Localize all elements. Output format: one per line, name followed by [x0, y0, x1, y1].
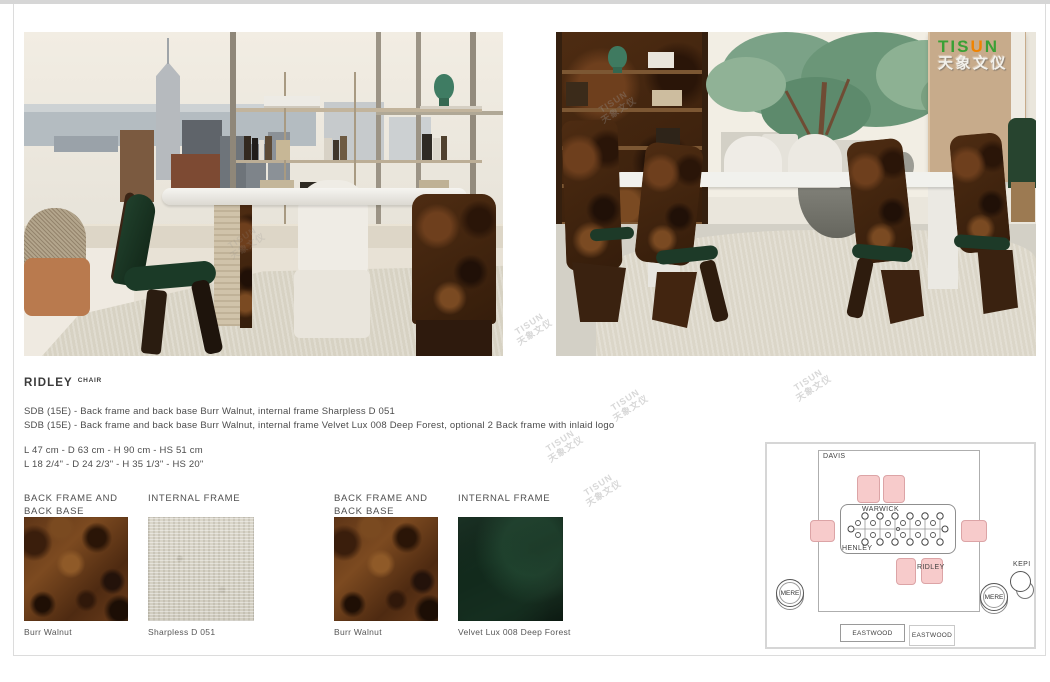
floorplan-panel: DAVIS WARWICK HENLEY: [765, 442, 1036, 649]
book: [276, 140, 290, 160]
burl-chair-base: [416, 320, 492, 356]
swatch-burr-walnut: [334, 517, 438, 621]
book: [566, 82, 588, 106]
burl-chair-base: [572, 262, 626, 322]
floorplan-label-eastwood: EASTWOOD: [852, 630, 892, 637]
description-line: SDB (15E) - Back frame and back base Bur…: [24, 419, 614, 433]
dimensions-metric: L 47 cm - D 63 cm - H 90 cm - HS 51 cm: [24, 444, 203, 458]
brand-logo-text: TISUN: [938, 38, 1030, 55]
mere-inner-ring: [983, 586, 1005, 608]
book: [265, 136, 272, 160]
product-photo-left: [24, 32, 503, 356]
floorplan-console-eastwood: EASTWOOD: [909, 625, 955, 646]
bust-neck: [439, 98, 449, 106]
book: [259, 140, 264, 160]
watermark: TISUN天象文仪: [789, 365, 833, 404]
floorplan-label-warwick: WARWICK: [862, 506, 899, 513]
book: [441, 136, 447, 160]
swatch-burr-walnut: [24, 517, 128, 621]
floorplan-chair: [961, 520, 987, 542]
swatch-caption: Burr Walnut: [24, 627, 72, 637]
book: [333, 140, 339, 160]
catalog-page: TISUN 天象文仪 RIDLEYCHAIR SDB (15E) - Back …: [0, 0, 1050, 682]
floorplan-label-henley: HENLEY: [842, 545, 872, 552]
floorplan-label-kepi: KEPI: [1013, 561, 1031, 568]
floorplan-label-eastwood: EASTWOOD: [912, 632, 952, 639]
floorplan-side-table-mere: MERE: [776, 579, 805, 608]
mere-top: MERE: [980, 583, 1008, 611]
boucle-chair-base: [294, 270, 370, 338]
watermark: TISUN天象文仪: [510, 309, 554, 348]
shelving-frame: [556, 32, 562, 250]
green-chair-distant: [1008, 118, 1036, 188]
mere-inner-ring: [779, 582, 801, 604]
mere-top: MERE: [776, 579, 804, 607]
page-left-edge: [13, 4, 14, 656]
table-leg-burl: [240, 204, 252, 328]
floorplan-label-davis: DAVIS: [823, 453, 846, 460]
bookshelf-shelf: [236, 160, 482, 163]
shelf: [562, 108, 702, 112]
page-bottom-edge: [13, 655, 1046, 656]
swatch-sharpless-fabric: [148, 517, 254, 621]
swatch-header: BACK FRAME AND BACK BASE: [334, 493, 446, 518]
bust-sculpture: [608, 46, 627, 69]
window-mullion: [376, 32, 381, 248]
tree-foliage: [706, 57, 786, 112]
swatch-velvet-deep-forest: [458, 517, 563, 621]
book: [244, 136, 251, 160]
tower-spire: [167, 38, 169, 64]
armchair-base: [24, 258, 90, 316]
shelving-frame: [702, 32, 708, 250]
wood-chair-legs: [1011, 182, 1035, 222]
watermark: TISUN天象文仪: [579, 470, 623, 509]
table-leg-travertine: [214, 204, 240, 326]
bust-sculpture: [434, 74, 454, 100]
page-title: RIDLEYCHAIR: [24, 377, 102, 389]
floorplan-side-table-mere: MERE: [980, 583, 1009, 612]
product-name: RIDLEY: [24, 377, 73, 389]
skyline-building: [54, 136, 118, 152]
floorplan-chair: [810, 520, 835, 542]
book: [422, 134, 432, 160]
swatch-header: BACK FRAME AND BACK BASE: [24, 493, 136, 518]
swatch-header: INTERNAL FRAME: [458, 493, 578, 506]
dimensions-imperial: L 18 2/4" - D 24 2/3" - H 35 1/3" - HS 2…: [24, 458, 203, 472]
page-top-strip: [0, 0, 1050, 4]
floorplan-chair: [921, 558, 943, 584]
book: [252, 138, 258, 160]
display-tray: [264, 96, 320, 108]
floorplan-chair: [896, 558, 916, 585]
swatch-caption: Sharpless D 051: [148, 627, 215, 637]
floorplan-chair: [857, 475, 880, 503]
shelf: [562, 70, 702, 74]
floorplan-corner-table-kepi: [1010, 571, 1031, 592]
brand-logo-chinese: 天象文仪: [938, 55, 1030, 72]
swatch-header: INTERNAL FRAME: [148, 493, 268, 506]
floorplan-label-ridley: RIDLEY: [917, 564, 945, 571]
brand-logo: TISUN 天象文仪: [938, 38, 1030, 84]
book: [652, 90, 682, 106]
product-dimensions: L 47 cm - D 63 cm - H 90 cm - HS 51 cm L…: [24, 444, 203, 471]
floorplan-console-eastwood: EASTWOOD: [840, 624, 905, 642]
swatch-caption: Velvet Lux 008 Deep Forest: [458, 627, 571, 637]
floorplan-chair: [883, 475, 905, 503]
book: [648, 52, 674, 68]
bookshelf-shelf: [420, 106, 482, 109]
burl-chair-back: [561, 119, 622, 271]
book: [340, 136, 347, 160]
burl-chair-back: [412, 194, 496, 324]
product-photo-right: TISUN 天象文仪: [556, 32, 1036, 356]
bust-neck: [613, 67, 622, 73]
description-line: SDB (15E) - Back frame and back base Bur…: [24, 405, 614, 419]
product-category: CHAIR: [78, 377, 102, 384]
book: [324, 138, 332, 160]
skyline-building: [120, 130, 154, 202]
page-right-edge: [1045, 4, 1046, 656]
swatch-caption: Burr Walnut: [334, 627, 382, 637]
book: [433, 138, 440, 160]
product-description: SDB (15E) - Back frame and back base Bur…: [24, 405, 614, 432]
